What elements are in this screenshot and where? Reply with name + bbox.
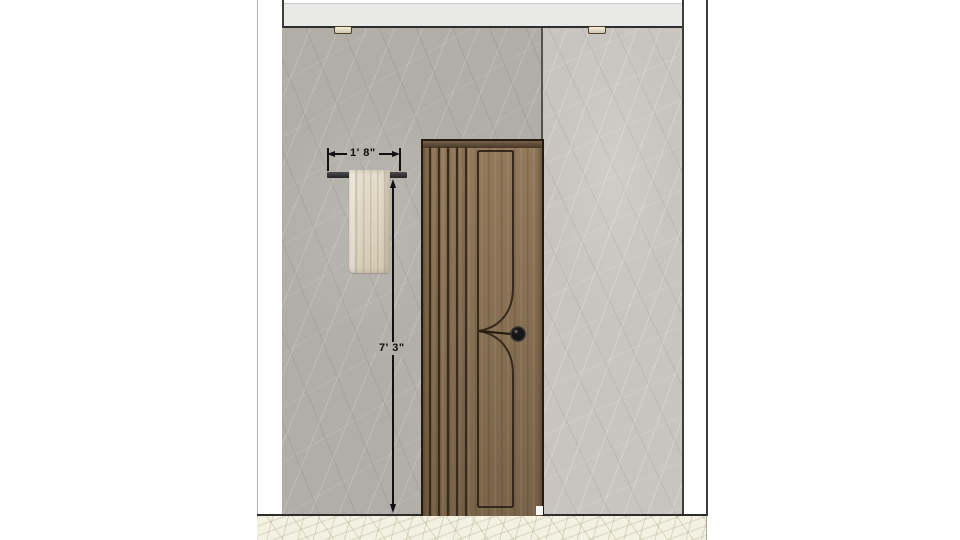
marble-floor	[257, 516, 707, 540]
right-wall-return	[682, 0, 708, 516]
dimension-tick-left	[327, 148, 329, 171]
dimension-tick-right	[399, 148, 401, 171]
recessed-light-icon	[588, 26, 606, 34]
dimension-arrow-down-icon	[390, 504, 396, 513]
door-threshold-gap	[536, 506, 543, 515]
dimension-arrow-up-icon	[390, 179, 396, 188]
door-knob-icon	[511, 327, 525, 341]
recessed-light-icon	[334, 26, 352, 34]
dimension-label-towel-bar-width: 1' 8"	[347, 147, 379, 160]
elevation-canvas: 1' 8" 7' 3"	[0, 0, 960, 540]
door-groove-pattern	[423, 141, 542, 516]
wood-slat-door	[421, 139, 544, 516]
towel	[349, 170, 390, 273]
dimension-label-height: 7' 3"	[376, 342, 408, 355]
left-wall-return	[257, 0, 284, 516]
marble-wall-panel-right	[543, 28, 682, 514]
